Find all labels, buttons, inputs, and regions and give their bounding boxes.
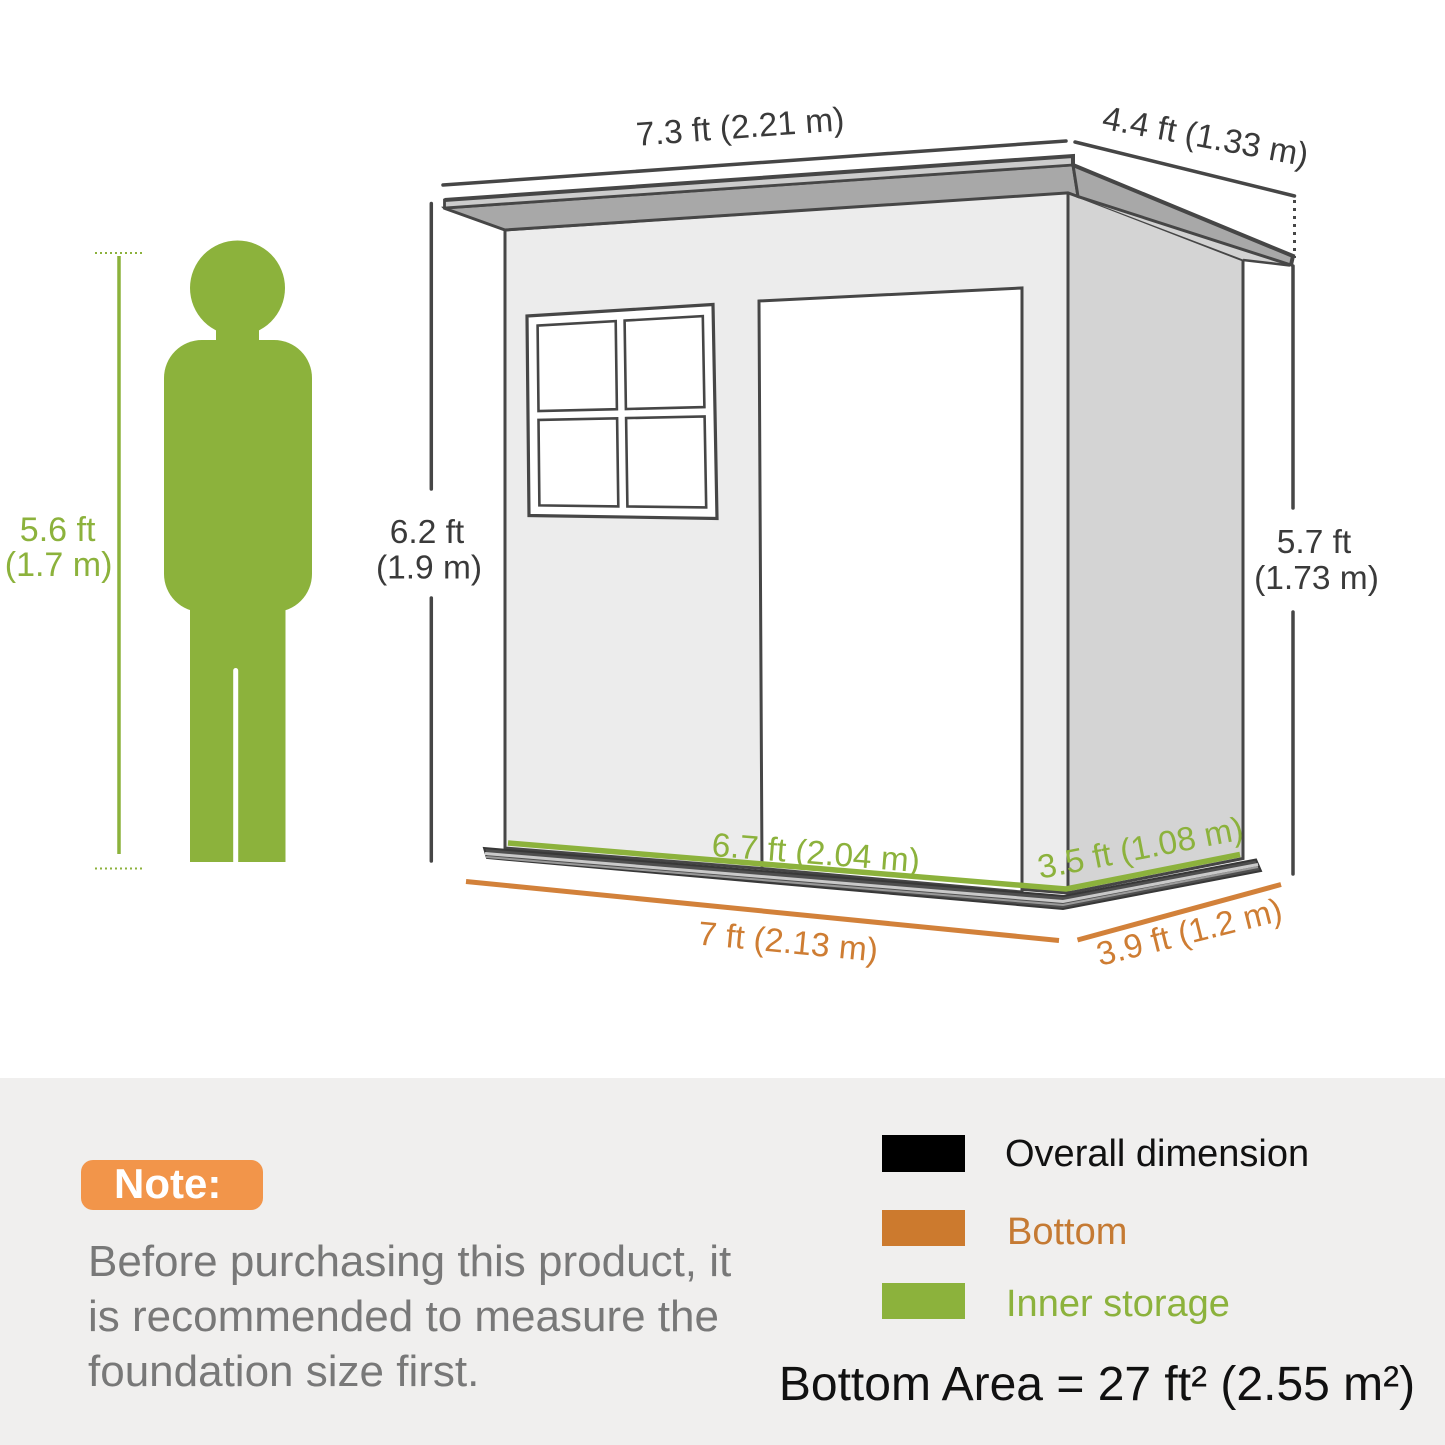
- svg-text:is recommended to measure the: is recommended to measure the: [88, 1292, 719, 1341]
- svg-text:(1.7 m): (1.7 m): [5, 546, 113, 584]
- svg-text:6.2 ft: 6.2 ft: [390, 514, 465, 551]
- svg-text:Bottom: Bottom: [1007, 1211, 1127, 1253]
- svg-text:5.6 ft: 5.6 ft: [20, 511, 96, 549]
- svg-text:Before purchasing this product: Before purchasing this product, it: [88, 1237, 731, 1286]
- svg-text:Bottom Area = 27 ft² (2.55 m²): Bottom Area = 27 ft² (2.55 m²): [779, 1358, 1415, 1411]
- svg-text:5.7 ft: 5.7 ft: [1277, 524, 1352, 561]
- svg-text:(1.73 m): (1.73 m): [1254, 560, 1379, 597]
- svg-text:Note:: Note:: [114, 1160, 221, 1207]
- svg-text:Inner storage: Inner storage: [1006, 1283, 1230, 1325]
- svg-text:(1.9 m): (1.9 m): [376, 550, 482, 587]
- svg-text:Overall dimension: Overall dimension: [1005, 1133, 1309, 1175]
- svg-text:foundation size first.: foundation size first.: [88, 1347, 479, 1396]
